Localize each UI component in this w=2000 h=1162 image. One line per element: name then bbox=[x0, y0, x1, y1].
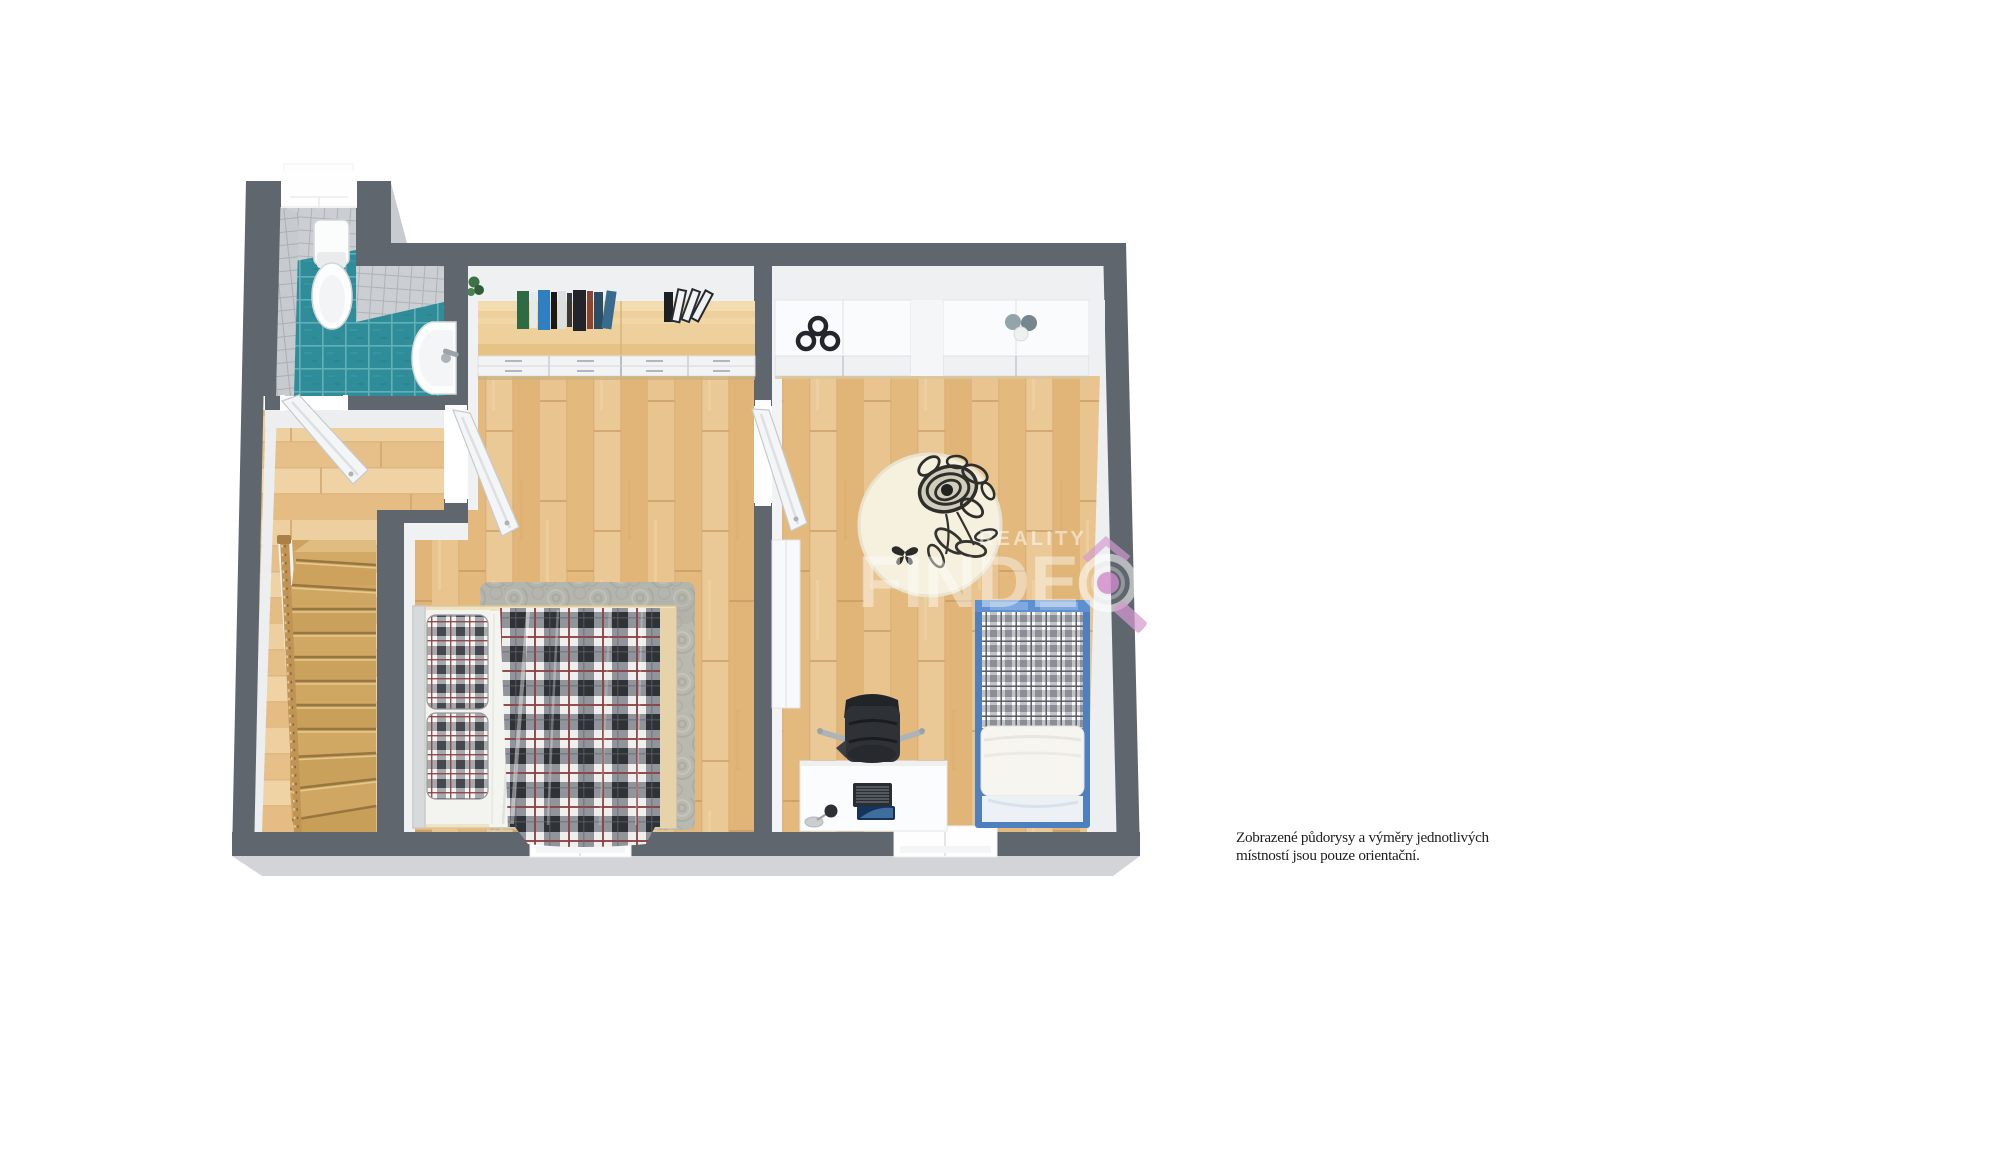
svg-text:FINDE: FINDE bbox=[858, 542, 1080, 623]
